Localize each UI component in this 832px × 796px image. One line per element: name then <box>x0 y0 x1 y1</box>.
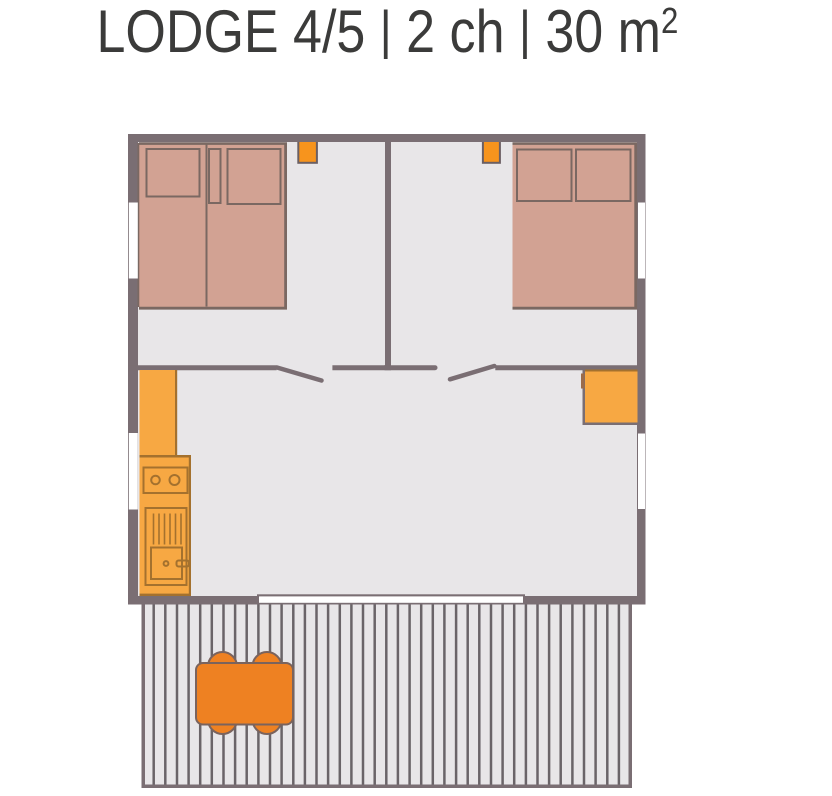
svg-text:LODGE 4/5 | 2 ch | 30 m2: LODGE 4/5 | 2 ch | 30 m2 <box>97 0 679 65</box>
